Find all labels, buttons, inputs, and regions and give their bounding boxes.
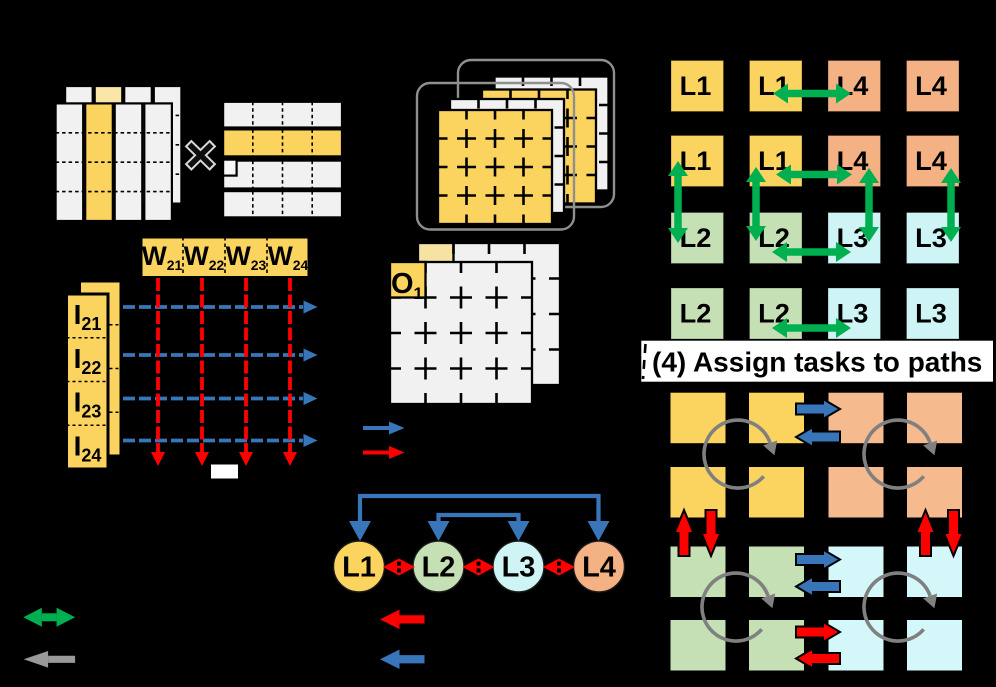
svg-text:L4: L4: [915, 70, 947, 101]
svg-text:L3: L3: [502, 552, 536, 584]
svg-text:L4: L4: [915, 145, 947, 176]
svg-text:L3: L3: [915, 222, 947, 253]
svg-text:L2: L2: [680, 298, 712, 329]
svg-text:(4) Assign tasks to paths: (4) Assign tasks to paths: [652, 347, 982, 378]
svg-text:L4: L4: [582, 552, 616, 584]
svg-text:L2: L2: [422, 552, 456, 584]
svg-text:L2: L2: [680, 222, 712, 253]
svg-text:L1: L1: [342, 552, 376, 584]
svg-text:L3: L3: [915, 298, 947, 329]
svg-text:L1: L1: [680, 70, 712, 101]
